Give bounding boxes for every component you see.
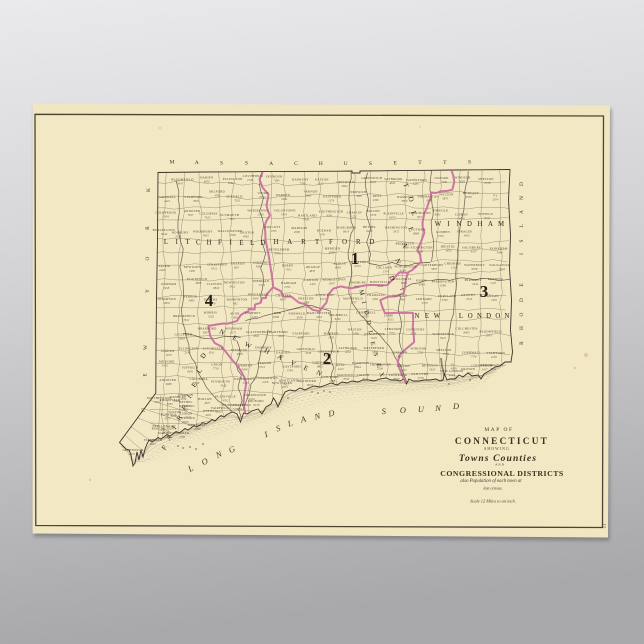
svg-text:678: 678 [320,232,325,236]
svg-text:3145: 3145 [318,182,325,186]
svg-text:N: N [457,221,462,228]
svg-text:7801: 7801 [193,199,200,203]
svg-text:3417: 3417 [482,368,489,372]
svg-text:4165: 4165 [401,368,408,372]
svg-text:6370: 6370 [370,180,377,184]
svg-text:1143: 1143 [490,281,496,285]
svg-text:D: D [370,239,375,246]
svg-text:2604: 2604 [163,215,170,219]
svg-text:R: R [145,226,151,230]
svg-text:H: H [207,239,212,246]
svg-text:6651: 6651 [446,248,453,252]
svg-text:3647: 3647 [177,181,184,185]
svg-text:3289: 3289 [440,283,447,287]
svg-text:A: A [287,239,292,246]
svg-text:R: R [301,239,306,246]
svg-text:6632: 6632 [278,334,285,338]
svg-text:7599: 7599 [441,180,448,184]
svg-text:6944: 6944 [161,232,168,236]
svg-text:6151: 6151 [320,297,327,301]
svg-text:6691: 6691 [282,197,289,201]
svg-text:3712: 3712 [259,365,266,369]
svg-text:3951: 3951 [490,367,497,371]
svg-text:L: L [519,224,525,227]
svg-text:5355: 5355 [438,234,445,238]
svg-text:8963: 8963 [179,337,186,341]
svg-text:7817: 7817 [188,213,195,217]
svg-text:7711: 7711 [467,371,473,375]
svg-text:D: D [519,182,525,186]
svg-text:H: H [319,161,323,167]
svg-text:A: A [488,221,493,228]
svg-text:4833: 4833 [309,269,316,273]
svg-text:2090: 2090 [294,230,301,234]
svg-text:3604: 3604 [342,184,349,188]
svg-text:S: S [519,240,525,243]
svg-text:5607: 5607 [203,331,210,335]
svg-text:7257: 7257 [216,410,223,414]
svg-text:S: S [468,160,471,166]
svg-text:817: 817 [363,377,368,381]
svg-text:8991: 8991 [164,301,171,305]
svg-text:1404: 1404 [236,407,243,411]
svg-text:3434: 3434 [499,267,506,271]
svg-text:T: T [418,160,422,166]
svg-text:5875: 5875 [442,197,449,201]
svg-text:4702: 4702 [222,398,229,402]
svg-text:T: T [443,160,447,166]
svg-text:7021: 7021 [234,199,241,203]
svg-text:5202: 5202 [208,315,215,319]
svg-text:6300: 6300 [298,335,305,339]
svg-text:1035: 1035 [328,336,335,340]
svg-text:8091: 8091 [335,265,342,269]
svg-text:4675: 4675 [166,353,173,357]
svg-text:1221: 1221 [351,215,358,219]
svg-text:8582: 8582 [228,181,235,185]
svg-text:8338: 8338 [472,267,479,271]
svg-text:4782: 4782 [214,194,221,198]
svg-text:4396: 4396 [373,198,380,202]
svg-text:CONGRESSIONAL DISTRICTS: CONGRESSIONAL DISTRICTS [440,469,564,478]
svg-text:8202: 8202 [335,317,342,321]
svg-text:7483: 7483 [274,178,281,182]
svg-text:4575: 4575 [164,416,171,420]
svg-text:3435: 3435 [413,182,420,186]
svg-text:H: H [478,221,483,228]
svg-text:RIDGEFIELD: RIDGEFIELD [248,293,269,297]
svg-text:last census.: last census. [483,486,502,491]
svg-text:2579: 2579 [422,301,429,305]
svg-text:S: S [220,160,223,166]
svg-text:1291: 1291 [451,266,458,270]
svg-text:3423: 3423 [162,364,169,368]
svg-text:also Population of each town a: also Population of each town at [460,479,522,484]
svg-text:S: S [245,161,248,167]
svg-text:U: U [344,161,348,167]
svg-text:O: O [495,313,500,320]
svg-text:5657: 5657 [329,282,336,286]
svg-text:4261: 4261 [205,413,212,417]
svg-text:6564: 6564 [419,283,426,287]
svg-text:C: C [196,239,201,246]
svg-text:1983: 1983 [417,250,424,254]
svg-text:4240: 4240 [377,284,384,288]
svg-text:1200: 1200 [159,428,166,432]
svg-text:8070: 8070 [362,315,369,319]
svg-text:4541: 4541 [327,214,334,218]
svg-text:6738: 6738 [485,181,492,185]
svg-text:E: E [393,161,397,167]
svg-text:3113: 3113 [243,381,249,385]
svg-text:2313: 2313 [175,235,182,239]
svg-text:3839: 3839 [256,264,263,268]
svg-text:D: D [519,298,525,302]
svg-text:11: 11 [603,523,608,528]
svg-text:8530: 8530 [297,315,304,319]
svg-text:F: F [218,240,222,247]
svg-text:AND: AND [495,463,505,467]
svg-text:SHOWING: SHOWING [484,447,510,451]
svg-text:8037: 8037 [280,297,287,301]
svg-text:5744: 5744 [259,283,266,287]
svg-text:4032: 4032 [464,234,471,238]
svg-text:2145: 2145 [185,351,192,355]
svg-text:D: D [261,240,266,247]
svg-text:852: 852 [230,217,235,221]
svg-text:6831: 6831 [435,213,442,217]
svg-text:6448: 6448 [353,332,360,336]
svg-text:2466: 2466 [159,268,166,272]
svg-text:2166: 2166 [396,355,403,359]
svg-text:MAP OF: MAP OF [484,427,513,433]
svg-text:8820: 8820 [213,286,220,290]
svg-text:M: M [498,221,504,228]
svg-text:LITCHFIELD: LITCHFIELD [243,174,264,178]
svg-text:6949: 6949 [275,251,282,255]
svg-text:1908: 1908 [329,379,336,383]
svg-text:A: A [519,210,525,214]
svg-text:3124: 3124 [410,332,417,336]
svg-text:5290: 5290 [252,315,259,319]
svg-text:3182: 3182 [221,384,228,388]
svg-text:6814: 6814 [260,195,267,199]
svg-text:2371: 2371 [129,452,136,456]
svg-text:6311: 6311 [209,351,215,355]
svg-text:6096: 6096 [329,251,336,255]
svg-text:E: E [425,313,429,320]
svg-text:6597: 6597 [471,250,478,254]
svg-text:7520: 7520 [303,218,310,222]
svg-text:5576: 5576 [370,213,377,217]
svg-text:4199: 4199 [400,268,407,272]
svg-text:4983: 4983 [189,299,196,303]
svg-text:O: O [145,256,151,260]
svg-text:7756: 7756 [470,355,477,359]
svg-text:2424: 2424 [164,199,171,203]
svg-text:L: L [164,239,168,246]
svg-text:2745: 2745 [449,373,456,377]
svg-text:8933: 8933 [307,383,314,387]
svg-text:1682: 1682 [372,297,379,301]
svg-text:3042: 3042 [187,369,194,373]
svg-text:O: O [400,406,407,415]
svg-text:CONNECTICUT: CONNECTICUT [455,436,549,446]
svg-text:2655: 2655 [345,350,352,354]
svg-text:5855: 5855 [431,267,438,271]
svg-text:N: N [415,313,420,320]
svg-text:3220: 3220 [371,336,378,340]
svg-text:A: A [269,161,273,167]
svg-text:1174: 1174 [328,199,334,203]
svg-text:8398: 8398 [195,427,202,431]
svg-text:D: D [467,221,472,228]
svg-text:5526: 5526 [466,297,473,301]
svg-text:7710: 7710 [213,367,220,371]
svg-text:3470: 3470 [458,216,465,220]
svg-text:5860: 5860 [305,194,312,198]
svg-text:4364: 4364 [252,297,259,301]
svg-text:2250: 2250 [491,355,498,359]
svg-text:660: 660 [234,266,239,270]
svg-text:8903: 8903 [464,331,471,335]
svg-text:7796: 7796 [300,182,307,186]
svg-text:7438: 7438 [189,269,196,273]
svg-text:D: D [452,402,459,411]
svg-text:2256: 2256 [262,380,269,384]
svg-text:8633: 8633 [150,442,157,446]
svg-text:4907: 4907 [204,401,211,405]
svg-text:3458: 3458 [163,286,170,290]
svg-text:7815: 7815 [203,233,210,237]
svg-text:4838: 4838 [195,281,202,285]
svg-text:N: N [141,408,147,412]
svg-text:2748: 2748 [247,178,254,182]
svg-text:7144: 7144 [281,213,288,217]
svg-text:4543: 4543 [426,198,433,202]
svg-text:1705: 1705 [271,229,278,233]
svg-text:8599: 8599 [394,377,401,381]
svg-text:W: W [434,313,441,320]
svg-text:982: 982 [233,301,238,305]
svg-text:N: N [505,313,510,320]
svg-text:2423: 2423 [310,282,317,286]
svg-text:K: K [146,188,152,192]
svg-text:7754: 7754 [443,352,450,356]
svg-text:M: M [170,160,175,166]
svg-text:W: W [435,221,442,228]
svg-text:3841: 3841 [486,333,493,337]
svg-text:3764: 3764 [287,368,294,372]
svg-text:H: H [274,239,279,246]
svg-text:2344: 2344 [472,282,479,286]
svg-text:2951: 2951 [316,315,323,319]
svg-text:3687: 3687 [356,194,363,198]
svg-text:2795: 2795 [284,285,291,289]
svg-text:5966: 5966 [497,250,504,254]
svg-text:H: H [519,326,525,330]
svg-text:7805: 7805 [253,334,260,338]
svg-text:7659: 7659 [343,377,350,381]
svg-text:TORRINGTON: TORRINGTON [244,393,267,397]
svg-text:5930: 5930 [466,195,473,199]
svg-text:2224: 2224 [338,367,345,371]
svg-text:3095: 3095 [459,180,466,184]
svg-text:8689: 8689 [413,232,420,236]
svg-text:5558: 5558 [305,351,312,355]
svg-text:7423: 7423 [204,216,211,220]
svg-text:N: N [519,196,525,200]
svg-text:7732: 7732 [417,350,424,354]
svg-text:N: N [434,404,441,413]
svg-text:A: A [195,160,199,166]
svg-text:3864: 3864 [355,365,362,369]
svg-text:3412: 3412 [229,285,236,289]
svg-text:L: L [250,240,254,247]
svg-text:5393: 5393 [442,298,449,302]
svg-text:2074: 2074 [492,198,499,202]
svg-text:D: D [486,313,491,320]
svg-text:8919: 8919 [343,230,350,234]
svg-text:4211: 4211 [388,318,394,322]
svg-text:2500: 2500 [258,213,265,217]
svg-text:6650: 6650 [204,179,211,183]
svg-text:4615: 4615 [282,385,289,389]
svg-text:3372: 3372 [393,230,400,234]
svg-text:O: O [519,312,525,316]
svg-text:7252: 7252 [389,331,396,335]
svg-text:3589: 3589 [303,301,310,305]
svg-text:6689: 6689 [166,382,173,386]
svg-text:3623: 3623 [440,336,447,340]
svg-text:E: E [239,240,243,247]
svg-text:L: L [459,313,463,320]
svg-text:6512: 6512 [211,266,218,270]
svg-text:7761: 7761 [180,435,187,439]
svg-text:5838: 5838 [401,281,408,285]
svg-text:S: S [369,161,372,167]
svg-text:2098: 2098 [273,315,280,319]
svg-text:823: 823 [417,215,422,219]
svg-text:7912: 7912 [286,268,293,272]
svg-text:3: 3 [480,282,489,301]
svg-text:2090: 2090 [230,233,237,237]
svg-text:968: 968 [400,297,405,301]
svg-text:1554: 1554 [383,269,390,273]
svg-text:3756: 3756 [418,376,425,380]
svg-text:Scale 12 Miles to an inch.: Scale 12 Miles to an inch. [470,499,516,504]
svg-text:4081: 4081 [243,234,250,238]
svg-text:N: N [477,313,482,320]
svg-text:2757: 2757 [351,300,358,304]
svg-text:8158: 8158 [253,403,260,407]
svg-text:5620: 5620 [429,368,436,372]
svg-text:F: F [329,239,333,246]
svg-text:1: 1 [351,249,360,268]
svg-text:7812: 7812 [183,318,190,322]
svg-text:8450: 8450 [389,216,396,220]
svg-text:2: 2 [323,349,332,368]
svg-text:I: I [519,253,525,255]
svg-text:R: R [519,341,525,345]
svg-text:4620: 4620 [389,181,396,185]
svg-text:O: O [468,313,473,320]
svg-text:O: O [342,239,347,246]
svg-text:8292: 8292 [484,216,491,220]
svg-text:STRATFORD: STRATFORD [207,262,227,266]
svg-text:2031: 2031 [491,298,498,302]
svg-text:R: R [356,239,361,246]
svg-text:6299: 6299 [366,229,373,233]
svg-text:3039: 3039 [241,368,248,372]
svg-text:4: 4 [205,291,214,310]
svg-text:690: 690 [233,316,238,320]
svg-text:8503: 8503 [237,352,244,356]
svg-text:C: C [294,161,298,167]
svg-text:Y: Y [145,289,151,293]
svg-text:3895: 3895 [353,284,360,288]
